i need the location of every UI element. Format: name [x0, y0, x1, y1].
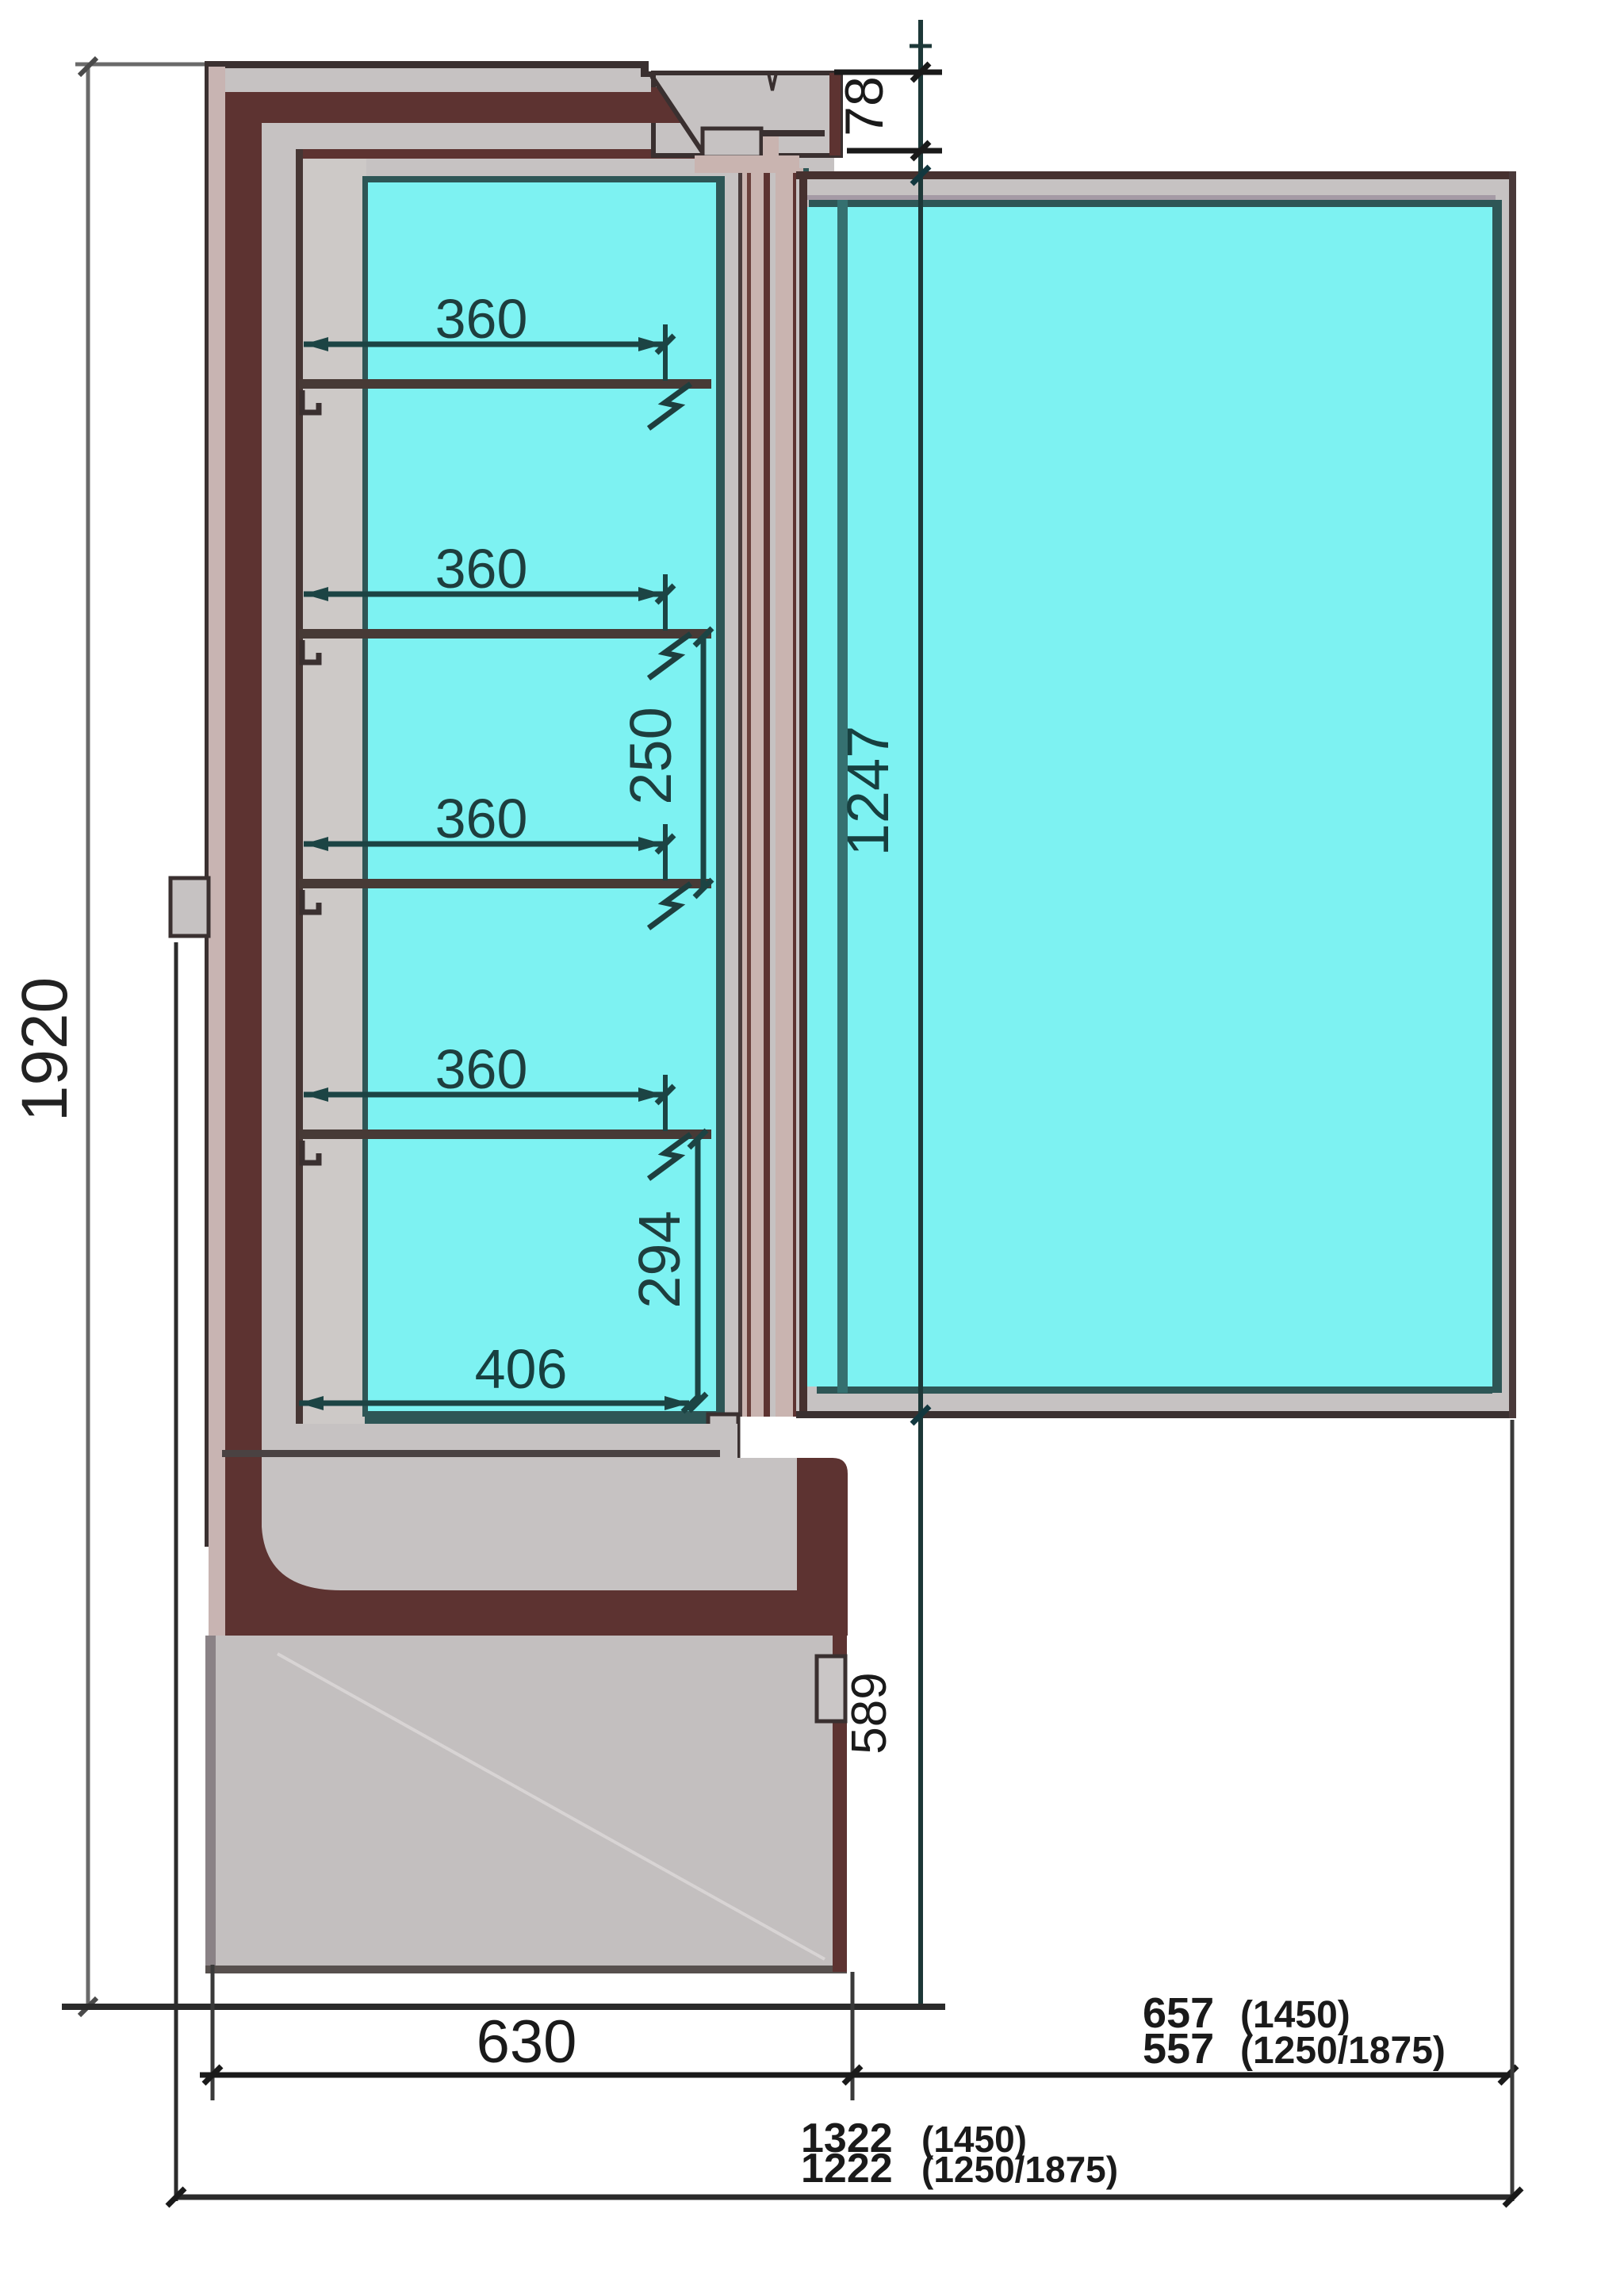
svg-text:1247: 1247: [835, 726, 901, 857]
svg-text:360: 360: [435, 788, 528, 850]
svg-text:589: 589: [842, 1672, 897, 1754]
svg-text:1920: 1920: [9, 977, 81, 1122]
svg-text:557: 557: [1143, 2025, 1214, 2073]
svg-text:250: 250: [618, 707, 684, 804]
svg-text:1222: 1222: [801, 2146, 893, 2192]
svg-text:630: 630: [477, 2008, 577, 2076]
svg-text:360: 360: [435, 538, 528, 600]
svg-text:(1250/1875): (1250/1875): [1240, 2030, 1446, 2072]
svg-text:(1250/1875): (1250/1875): [921, 2149, 1118, 2190]
svg-text:294: 294: [626, 1210, 692, 1308]
svg-text:360: 360: [435, 1038, 528, 1100]
svg-text:78: 78: [834, 76, 894, 136]
svg-text:360: 360: [435, 288, 528, 350]
svg-text:406: 406: [475, 1338, 568, 1400]
